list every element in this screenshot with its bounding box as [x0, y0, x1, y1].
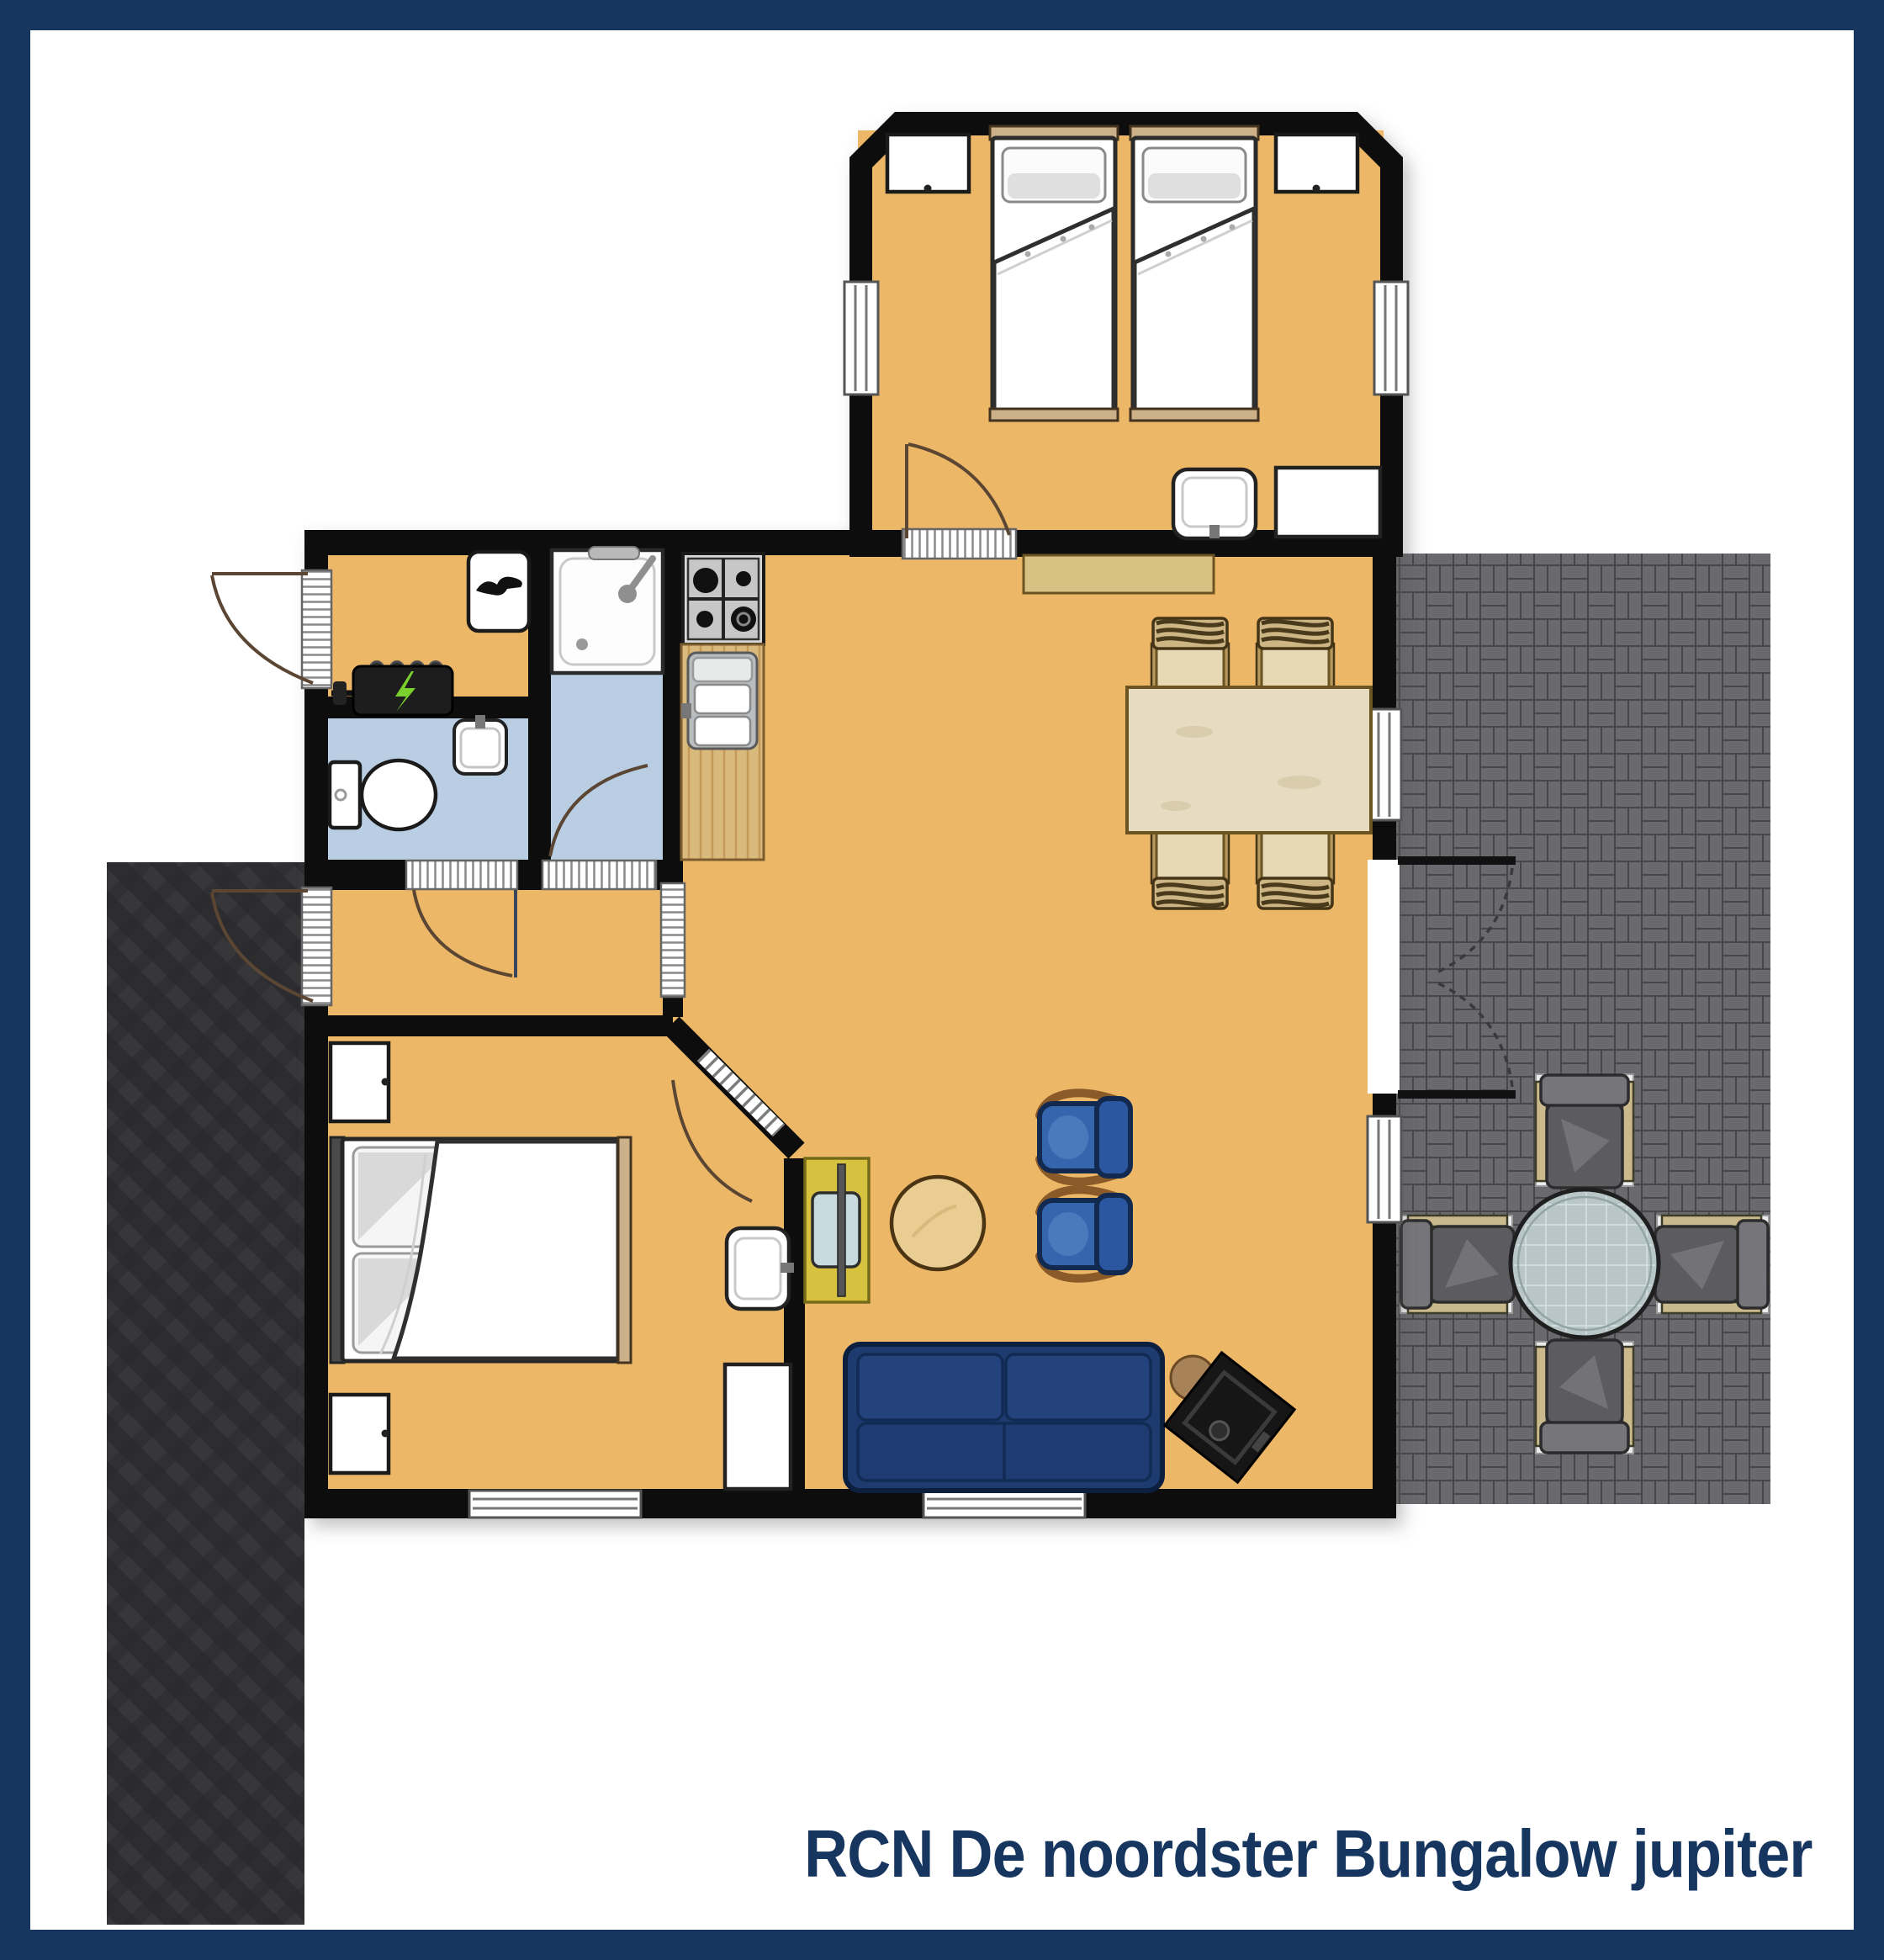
faucet-icon [475, 715, 485, 728]
bedroom2-dresser [725, 1364, 791, 1489]
nightstand [331, 1043, 389, 1121]
tv-cabinet [805, 1158, 869, 1302]
nightstand [1276, 135, 1357, 193]
double-bed [331, 1137, 631, 1363]
doorway-toilet [406, 861, 517, 889]
outdoor-chair-east [1655, 1216, 1769, 1313]
burner [696, 611, 713, 628]
side-path [107, 862, 304, 1925]
dining-table [1127, 687, 1371, 833]
doorway-shower [542, 861, 656, 889]
doorway-bedroom1 [902, 529, 1016, 559]
nightstand [887, 135, 969, 193]
faucet-icon [1209, 525, 1220, 538]
outdoor-round-table [1511, 1189, 1659, 1338]
window-bedroom1-left [844, 282, 878, 395]
window-bedroom2 [469, 1491, 641, 1518]
burner [693, 568, 718, 593]
front-door [302, 570, 331, 688]
plan-title: RCN De noordster Bungalow jupiter [804, 1815, 1812, 1899]
faucet-icon [781, 1263, 794, 1273]
floor-plan-drawing [0, 0, 1884, 1960]
kitchen-sink [681, 653, 757, 749]
kitchen [681, 554, 764, 860]
terrace-door-leaf-top [1398, 856, 1516, 865]
floor-plan-page: RCN De noordster Bungalow jupiter [0, 0, 1884, 1960]
rear-terrace [1396, 554, 1770, 1504]
side-door [302, 887, 331, 1005]
doorway-hall2-living [661, 883, 685, 997]
coffee-table [892, 1177, 984, 1269]
single-bed-left [990, 126, 1118, 421]
armchair [1040, 1093, 1130, 1181]
window-living-east [1368, 1116, 1401, 1222]
shower-room [552, 547, 663, 673]
stove [683, 554, 764, 644]
wall-hall2-bedroom [328, 1015, 673, 1036]
single-bed-right [1130, 126, 1258, 421]
window-bedroom1-right [1374, 282, 1408, 395]
wall-shower-kitchen [663, 555, 683, 883]
dining-chair [1257, 618, 1334, 697]
bedroom2-sink [727, 1228, 794, 1309]
outdoor-chair-south [1536, 1340, 1633, 1454]
faucet-icon [681, 703, 691, 718]
burner [731, 607, 756, 632]
outdoor-chair-north [1536, 1074, 1633, 1188]
tv-screen [812, 1193, 860, 1267]
dining-chair [1151, 829, 1229, 908]
sideboard [1024, 555, 1214, 593]
window-living-south [923, 1491, 1085, 1518]
wall-hall-shower [528, 555, 551, 877]
dining-chair [1151, 618, 1229, 697]
burner [736, 571, 751, 586]
terrace-door-opening [1368, 860, 1400, 1094]
boiler-cabinet [468, 552, 529, 631]
tv [838, 1164, 845, 1296]
sofa [845, 1344, 1162, 1491]
bedroom1-cabinet [1276, 468, 1380, 537]
dining-chair [1257, 829, 1334, 908]
toilet-sink [454, 715, 506, 774]
wall-stub [663, 997, 683, 1017]
toilet-bowl [362, 760, 436, 829]
drain [576, 638, 588, 650]
bedroom1-sink [1173, 469, 1256, 538]
outdoor-chair-west [1400, 1216, 1514, 1313]
nightstand [331, 1395, 389, 1473]
terrace-door-leaf-bottom [1398, 1090, 1516, 1099]
armchair [1040, 1189, 1130, 1278]
